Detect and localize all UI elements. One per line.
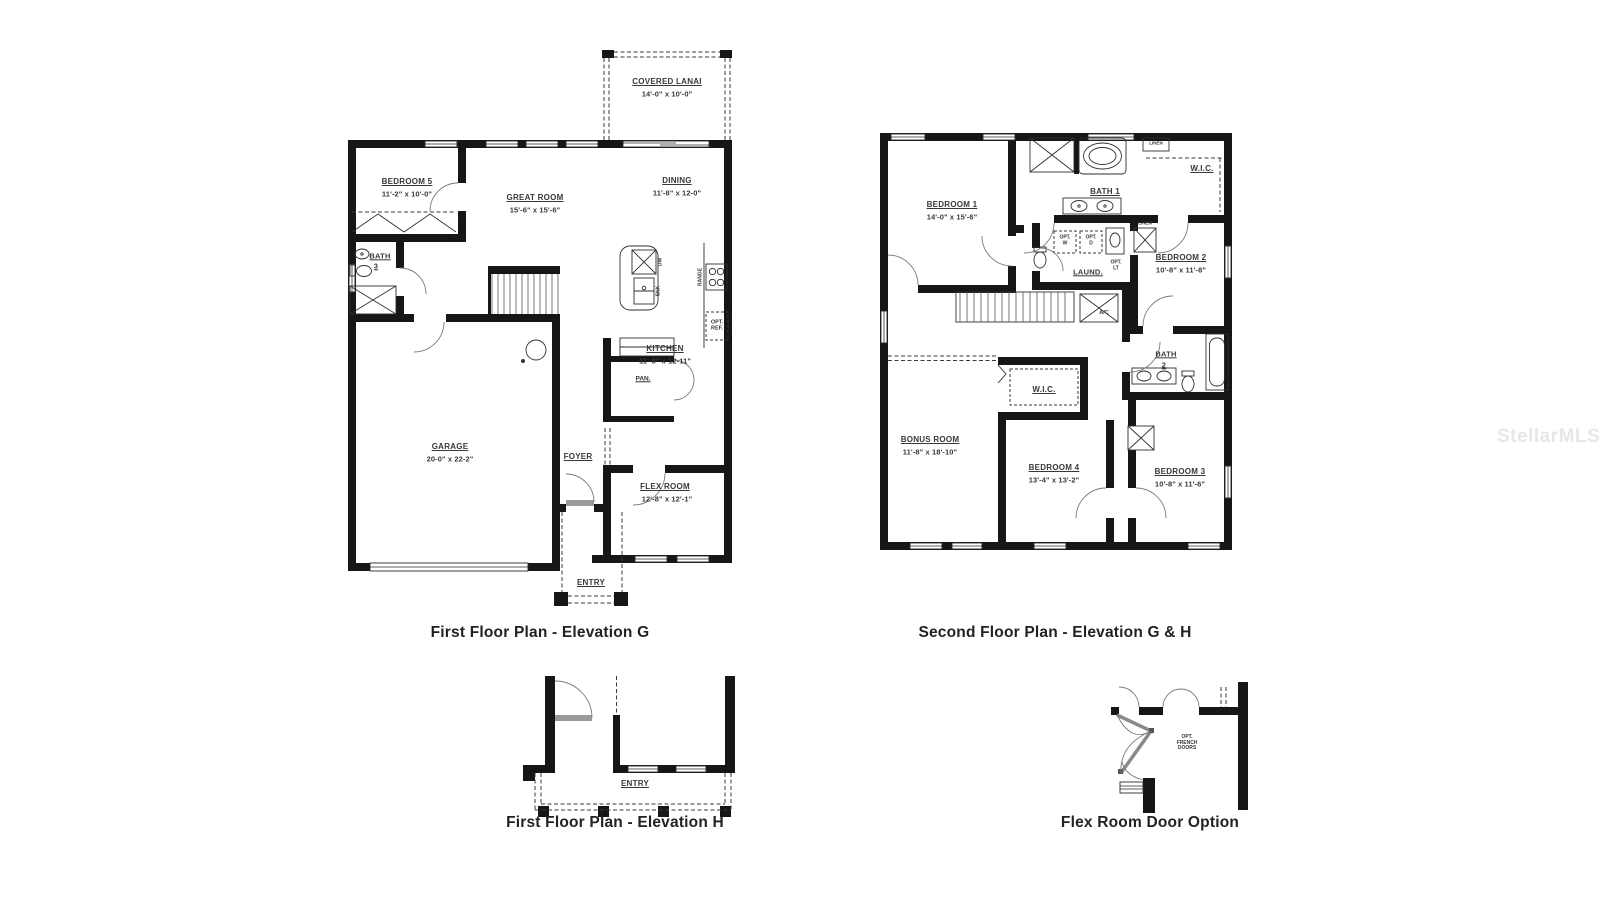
label-snk: SNK (656, 286, 662, 297)
label-bedroom2-dims: 10'-8" x 11'-8" (1156, 265, 1206, 274)
label-bath3-num: 3 (374, 261, 378, 270)
dashed-lines (1221, 687, 1226, 707)
flex-room-door-option: OPT. FRENCH DOORS (1055, 655, 1265, 825)
label-bonus-room: BONUS ROOM (901, 435, 960, 445)
label-bath2: BATH (1155, 349, 1176, 358)
label-foyer: FOYER (564, 452, 593, 462)
label-opt-ref: OPT. REF. (711, 320, 723, 333)
second-floor-plan-drawing (858, 128, 1243, 568)
label-bath2-num: 2 (1162, 360, 1166, 369)
label-bedroom2: BEDROOM 2 (1156, 253, 1207, 263)
label-wic1: W.I.C. (1190, 164, 1213, 174)
label-dining-dims: 11'-8" x 12-0" (653, 188, 701, 197)
label-linen2: LINEN (1138, 222, 1152, 227)
label-bath3: BATH (369, 251, 390, 260)
label-great-room: GREAT ROOM (506, 193, 563, 203)
label-ac: A/C (1099, 310, 1108, 316)
stairs (960, 292, 1065, 322)
windows (1120, 782, 1143, 793)
dashed-lines (352, 52, 730, 603)
label-bedroom4: BEDROOM 4 (1029, 463, 1080, 473)
first-floor-plan-g-drawing (340, 38, 740, 613)
label-covered-lanai-dims: 14'-0" x 10'-0" (642, 89, 693, 98)
label-entry-h: ENTRY (621, 779, 649, 789)
label-opt-w: OPT. W (1059, 236, 1070, 247)
label-pantry: PAN. (635, 375, 650, 382)
label-bedroom3-dims: 10'-8" x 11'-6" (1155, 479, 1205, 488)
label-opt-french-doors: OPT. FRENCH DOORS (1177, 735, 1198, 752)
floor-plan-sheet: COVERED LANAI 14'-0" x 10'-0" BEDROOM 5 … (0, 0, 1600, 898)
title-first-floor-g: First Floor Plan - Elevation G (340, 624, 740, 642)
dashed-lines (535, 676, 731, 810)
label-entry-g: ENTRY (577, 578, 605, 588)
label-garage-dims: 20-0" x 22-2" (427, 454, 474, 463)
stairs (492, 274, 558, 314)
entry-door-slab (555, 715, 592, 721)
label-bedroom3: BEDROOM 3 (1155, 467, 1206, 477)
doors (555, 681, 592, 718)
title-second-floor-gh: Second Floor Plan - Elevation G & H (860, 624, 1250, 642)
label-bedroom5: BEDROOM 5 (382, 177, 433, 187)
label-garage: GARAGE (432, 442, 469, 452)
label-linen1: LINEN (1149, 142, 1163, 147)
label-flex-room: FLEX ROOM (640, 482, 690, 492)
label-dw: DW (658, 258, 664, 266)
walls (348, 50, 732, 606)
label-kitchen: KITCHEN (646, 344, 683, 354)
label-bedroom4-dims: 13'-4" x 13'-2" (1029, 475, 1080, 484)
label-opt-lt: OPT. LT (1110, 261, 1121, 272)
label-wic2: W.I.C. (1032, 385, 1055, 395)
flex-door-option-drawing (1055, 655, 1265, 825)
label-great-room-dims: 15'-6" x 15'-6" (510, 205, 561, 214)
label-bedroom1: BEDROOM 1 (927, 200, 978, 210)
label-bedroom5-dims: 11'-2" x 10'-0" (382, 189, 432, 198)
label-kitchen-dims: 11'-8" x 12-11" (639, 356, 691, 365)
label-bedroom1-dims: 14'-0" x 15'-6" (927, 212, 978, 221)
label-flex-room-dims: 12'-8" x 12'-1" (642, 494, 693, 503)
fixtures (956, 138, 1228, 450)
label-laundry: LAUND. (1073, 267, 1103, 276)
title-first-floor-h: First Floor Plan - Elevation H (455, 814, 775, 832)
label-covered-lanai: COVERED LANAI (632, 77, 701, 87)
first-floor-plan-h: ENTRY (495, 660, 745, 820)
second-floor-plan-gh: BEDROOM 1 14'-0" x 15'-6" BATH 1 W.I.C. … (858, 128, 1243, 568)
label-opt-d: OPT. D (1085, 236, 1096, 247)
label-dining: DINING (662, 176, 692, 186)
stellar-mls-watermark: StellarMLS (1497, 426, 1600, 448)
title-flex-door-option: Flex Room Door Option (990, 814, 1310, 832)
label-bonus-room-dims: 11'-8" x 18'-10" (903, 447, 957, 456)
walls (523, 676, 735, 817)
first-floor-plan-h-drawing (495, 660, 745, 820)
first-floor-plan-g: COVERED LANAI 14'-0" x 10'-0" BEDROOM 5 … (340, 38, 740, 613)
label-range: RANGE (698, 268, 704, 286)
label-bath1: BATH 1 (1090, 187, 1120, 197)
